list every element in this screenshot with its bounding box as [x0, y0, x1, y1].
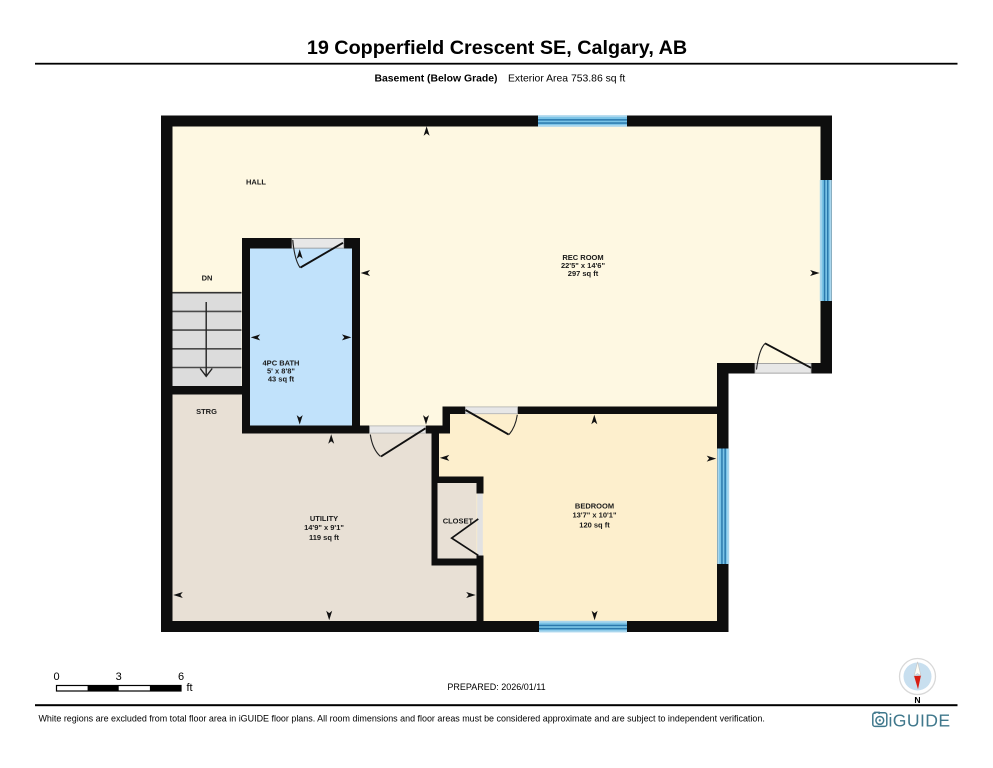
svg-text:3: 3 [116, 671, 122, 683]
svg-text:DN: DN [202, 274, 213, 283]
svg-text:White regions are excluded fro: White regions are excluded from total fl… [39, 714, 765, 724]
svg-text:Basement (Below Grade): Basement (Below Grade) [375, 74, 498, 85]
svg-text:CLOSET: CLOSET [443, 516, 474, 525]
svg-text:19 Copperfield Crescent SE, Ca: 19 Copperfield Crescent SE, Calgary, AB [307, 37, 687, 59]
svg-text:STRG: STRG [196, 407, 217, 416]
svg-text:13'7" x 10'1": 13'7" x 10'1" [572, 511, 616, 520]
svg-text:HALL: HALL [246, 178, 266, 187]
svg-text:297 sq ft: 297 sq ft [568, 269, 599, 278]
svg-text:N: N [914, 695, 920, 705]
svg-text:BEDROOM: BEDROOM [575, 502, 614, 511]
svg-text:119 sq ft: 119 sq ft [309, 533, 340, 542]
svg-text:ft: ft [187, 682, 193, 694]
svg-text:120 sq ft: 120 sq ft [579, 521, 610, 530]
svg-text:iGUIDE: iGUIDE [889, 710, 951, 730]
svg-text:UTILITY: UTILITY [310, 514, 338, 523]
svg-text:6: 6 [178, 671, 184, 683]
svg-text:Exterior Area 753.86 sq ft: Exterior Area 753.86 sq ft [508, 74, 625, 85]
svg-text:PREPARED: 2026/01/11: PREPARED: 2026/01/11 [447, 682, 545, 692]
svg-text:43 sq ft: 43 sq ft [268, 375, 295, 384]
svg-text:0: 0 [53, 671, 59, 683]
svg-text:14'9" x 9'1": 14'9" x 9'1" [304, 523, 344, 532]
